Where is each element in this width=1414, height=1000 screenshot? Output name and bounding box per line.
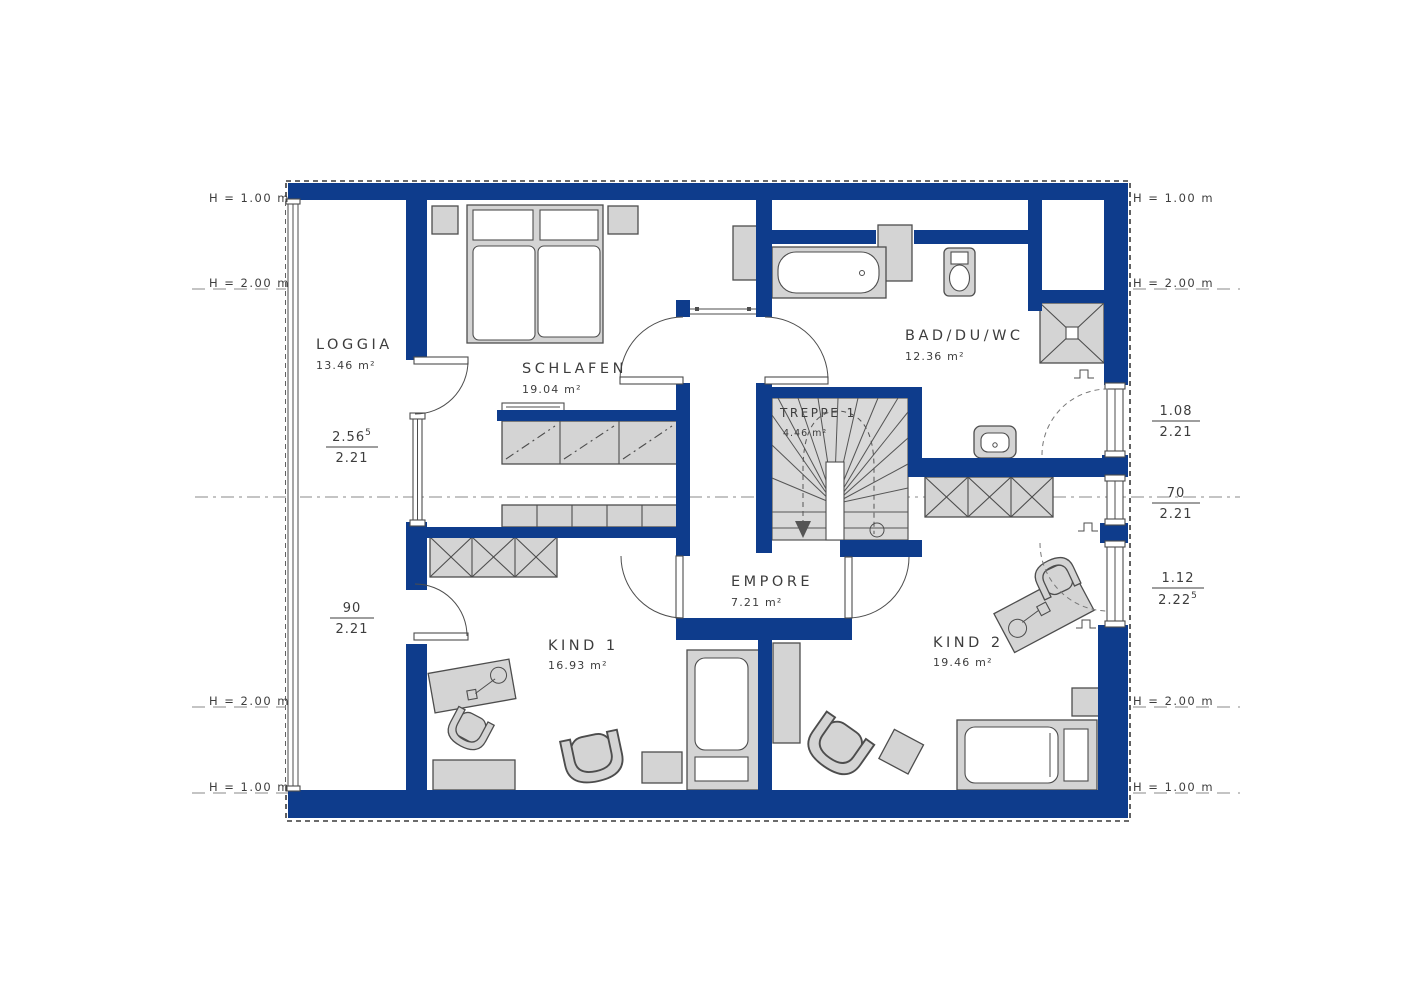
wall-segment [676, 618, 852, 640]
wall-segment [288, 183, 1128, 200]
side-table-symbol-kind2 [879, 729, 924, 774]
svg-text:1.12: 1.12 [1162, 571, 1195, 586]
door-schlafen [620, 317, 683, 384]
wall-segment [758, 640, 772, 790]
room-area-schlafen: 19.04 m² [522, 383, 582, 396]
radiator-symbol [733, 226, 759, 280]
dimension-right-window-bottom: 1.12 2.225 [1152, 571, 1204, 608]
door-loggia-schlafen [414, 357, 468, 414]
dimension-right-window-top: 1.08 2.21 [1152, 404, 1200, 440]
svg-text:2.21: 2.21 [1160, 425, 1193, 440]
door-bad [765, 317, 828, 384]
armchair-symbol-kind2 [800, 712, 874, 783]
svg-text:2.565: 2.565 [332, 428, 372, 445]
wall-segment [908, 458, 1128, 477]
floor-plan-canvas: LOGGIA 13.46 m² SCHLAFEN 19.04 m² BAD/DU… [0, 0, 1414, 1000]
door-kind2 [845, 557, 909, 618]
wall-segment [756, 383, 772, 553]
nightstand-symbol [608, 206, 638, 234]
room-area-loggia: 13.46 m² [316, 359, 376, 372]
room-area-bad: 12.36 m² [905, 350, 965, 363]
bed-symbol-kind1 [687, 650, 760, 790]
room-area-kind1: 16.93 m² [548, 659, 608, 672]
room-label-schlafen: SCHLAFEN [522, 361, 627, 377]
height-mark: H = 2.00 m [1133, 694, 1214, 708]
wall-segment [840, 540, 922, 557]
bed-symbol-kind2 [957, 720, 1097, 790]
wall-segment [676, 300, 690, 317]
room-area-kind2: 19.46 m² [933, 656, 993, 669]
schlafen-window [410, 413, 425, 526]
wall-segment [770, 230, 876, 244]
wall-segment [427, 527, 689, 538]
sideboard-symbol-kind1 [433, 760, 515, 790]
room-label-bad: BAD/DU/WC [905, 328, 1024, 344]
wall-segment [1100, 523, 1128, 543]
floor-plan-page: LOGGIA 13.46 m² SCHLAFEN 19.04 m² BAD/DU… [0, 0, 1414, 1000]
wall-segment [756, 387, 922, 398]
wall-segment [497, 410, 685, 421]
wall-segment [406, 200, 427, 360]
low-cabinet-symbol [502, 505, 677, 527]
door-loggia-kind1 [414, 584, 468, 640]
window-swing-arc [1042, 389, 1108, 455]
nightstand-symbol [432, 206, 458, 234]
height-mark: H = 2.00 m [209, 276, 290, 290]
svg-text:2.21: 2.21 [336, 622, 369, 637]
side-table-symbol-kind2 [1072, 688, 1102, 716]
dimension-left-door: 90 2.21 [330, 601, 374, 637]
dimension-right-window-mid: 70 2.21 [1152, 486, 1200, 522]
right-window-mid [1105, 475, 1125, 525]
wall-segment [1102, 455, 1128, 477]
shower-symbol [1040, 303, 1104, 363]
wall-segment [914, 230, 1030, 244]
height-mark: H = 1.00 m [1133, 780, 1214, 794]
height-mark: H = 2.00 m [1133, 276, 1214, 290]
svg-text:2.21: 2.21 [1160, 507, 1193, 522]
gallery-railing [690, 307, 756, 314]
desk-chair-symbol-kind1 [443, 706, 494, 755]
height-mark: H = 1.00 m [209, 780, 290, 794]
dimension-left-window: 2.565 2.21 [326, 428, 378, 466]
wall-segment [1028, 290, 1106, 303]
wall-segment [1104, 183, 1128, 385]
right-window-bottom [1105, 541, 1125, 627]
washbasin-symbol [974, 426, 1016, 458]
room-label-treppe: TREPPE 1 [779, 406, 857, 420]
wall-segment [406, 644, 427, 790]
bathtub-symbol [772, 247, 886, 298]
svg-text:2.21: 2.21 [336, 451, 369, 466]
desk-symbol-kind1 [428, 659, 516, 713]
wall-segment [908, 387, 922, 462]
double-bed-symbol [467, 205, 603, 343]
room-label-kind1: KIND 1 [548, 638, 619, 654]
armchair-symbol-kind1 [560, 730, 626, 787]
wall-segment [406, 522, 427, 590]
room-label-loggia: LOGGIA [316, 337, 393, 353]
wall-segment [288, 790, 1128, 818]
wardrobe-rail-symbol [502, 421, 677, 464]
wardrobe-x-symbol-kind1 [430, 537, 557, 577]
height-mark: H = 1.00 m [1133, 191, 1214, 205]
wardrobe-x-symbol-kind2 [925, 477, 1053, 517]
side-table-symbol-kind1 [642, 752, 682, 783]
svg-text:1.08: 1.08 [1160, 404, 1193, 419]
height-mark: H = 2.00 m [209, 694, 290, 708]
svg-text:70: 70 [1167, 486, 1186, 501]
room-area-empore: 7.21 m² [731, 596, 783, 609]
right-window-top [1105, 383, 1125, 457]
svg-text:90: 90 [343, 601, 362, 616]
wall-segment [756, 200, 772, 317]
room-label-kind2: KIND 2 [933, 635, 1004, 651]
height-mark: H = 1.00 m [209, 191, 290, 205]
room-area-treppe: 4.46 m² [783, 428, 827, 439]
room-label-empore: EMPORE [731, 574, 813, 590]
toilet-symbol [944, 248, 975, 296]
shelf-symbol [502, 403, 564, 411]
wall-segment [676, 383, 690, 556]
door-kind1 [621, 556, 683, 618]
wall-segment [1098, 625, 1128, 790]
wardrobe-symbol-kind2 [773, 643, 800, 743]
svg-text:2.225: 2.225 [1158, 591, 1198, 608]
